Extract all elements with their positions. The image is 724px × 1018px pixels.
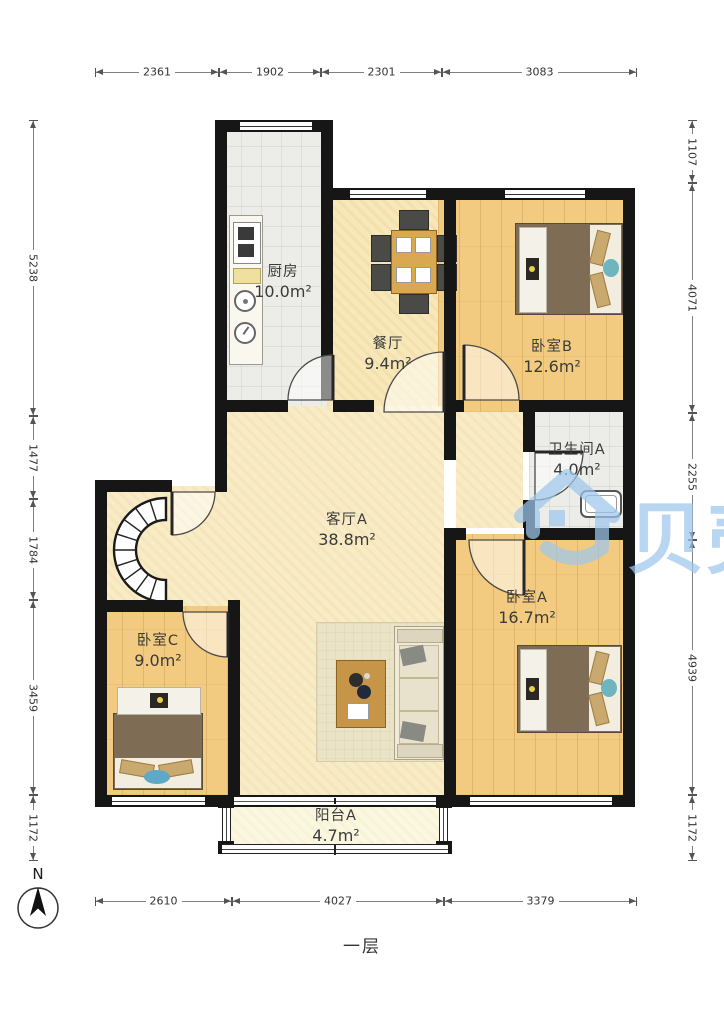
- wall: [228, 600, 240, 795]
- wall: [519, 400, 635, 412]
- wall: [523, 500, 535, 528]
- wall: [95, 600, 183, 612]
- bed-icon: [113, 687, 203, 790]
- wall: [215, 120, 227, 492]
- dimension-right: 1107: [685, 120, 699, 183]
- room-label-bathroom-a: 卫生间A4.0m²: [548, 440, 605, 480]
- room-label-bedroom-a: 卧室A16.7m²: [498, 588, 556, 628]
- cushion-icon: [144, 770, 170, 784]
- dimension-top: 3083: [442, 65, 637, 79]
- compass-icon: [15, 882, 61, 930]
- wall: [444, 412, 456, 460]
- bed-icon: [517, 645, 622, 733]
- wall: [333, 188, 350, 200]
- bathtub-icon: [580, 490, 622, 518]
- north-label: N: [14, 866, 62, 882]
- sofa-icon: [394, 626, 444, 760]
- dimension-left: 1784: [26, 499, 40, 600]
- balcony-post: [436, 795, 452, 808]
- wall: [426, 188, 505, 200]
- chair-icon: [399, 210, 429, 230]
- wall: [623, 188, 635, 807]
- window: [112, 795, 205, 807]
- dimension-left: 3459: [26, 600, 40, 795]
- room-label-balcony-a: 阳台A4.7m²: [312, 806, 359, 846]
- wall: [215, 400, 288, 412]
- wall: [444, 528, 456, 807]
- dimension-top: 2361: [95, 65, 219, 79]
- dimension-bottom: 2610: [95, 894, 232, 908]
- room-label-kitchen: 厨房10.0m²: [254, 262, 312, 302]
- window: [350, 188, 426, 200]
- watermark-text: 贝壳: [627, 477, 724, 589]
- room-label-bedroom-c: 卧室C9.0m²: [134, 631, 181, 671]
- dimension-right: 1172: [685, 795, 699, 861]
- cushion-icon: [601, 679, 617, 697]
- wall: [612, 795, 635, 807]
- window: [470, 795, 612, 807]
- cushion-icon: [603, 259, 619, 277]
- north-indicator: N: [14, 866, 62, 934]
- dimension-bottom: 4027: [232, 894, 444, 908]
- dimension-right: 2255: [685, 413, 699, 540]
- chair-icon: [371, 235, 391, 262]
- balcony-post: [218, 795, 234, 808]
- dimension-left: 1172: [26, 795, 40, 861]
- room-label-dining: 餐厅9.4m²: [364, 334, 411, 374]
- kettle-icon: [234, 322, 256, 344]
- tv-cabinet-icon: [117, 687, 201, 715]
- wall: [321, 120, 333, 400]
- table-top: [391, 230, 437, 294]
- chair-icon: [371, 264, 391, 291]
- sink-icon: [234, 290, 256, 312]
- chair-icon: [399, 294, 429, 314]
- tv-cabinet-icon: [519, 227, 547, 313]
- floorplan-canvas: 厨房10.0m² 餐厅9.4m² 卧室B12.6m² 卫生间A4.0m² 客厅A…: [0, 0, 724, 1018]
- dimension-bottom: 3379: [444, 894, 637, 908]
- dimension-right: 4071: [685, 183, 699, 413]
- wall: [333, 400, 374, 412]
- dimension-right: 4939: [685, 540, 699, 795]
- balcony-window: [439, 808, 448, 841]
- spiral-stairs-icon: [104, 494, 170, 606]
- floor-name: 一层: [343, 932, 381, 957]
- stove-icon: [233, 222, 261, 264]
- wall: [523, 412, 535, 452]
- dimension-left: 1477: [26, 416, 40, 499]
- wall: [444, 400, 464, 412]
- window: [505, 188, 585, 200]
- wall: [95, 795, 112, 807]
- dimension-top: 2301: [321, 65, 442, 79]
- window: [240, 120, 312, 132]
- wall: [524, 528, 635, 540]
- bed-icon: [515, 223, 623, 315]
- dimension-left: 5238: [26, 120, 40, 416]
- wall: [95, 480, 107, 807]
- coffee-table-icon: [336, 660, 386, 728]
- dimension-top: 1902: [219, 65, 321, 79]
- balcony-window: [222, 808, 231, 841]
- tv-cabinet-icon: [520, 649, 547, 731]
- room-label-living-a: 客厅A38.8m²: [318, 510, 376, 550]
- room-label-bedroom-b: 卧室B12.6m²: [523, 337, 581, 377]
- hallway-floor: [456, 412, 523, 528]
- wall: [444, 200, 456, 400]
